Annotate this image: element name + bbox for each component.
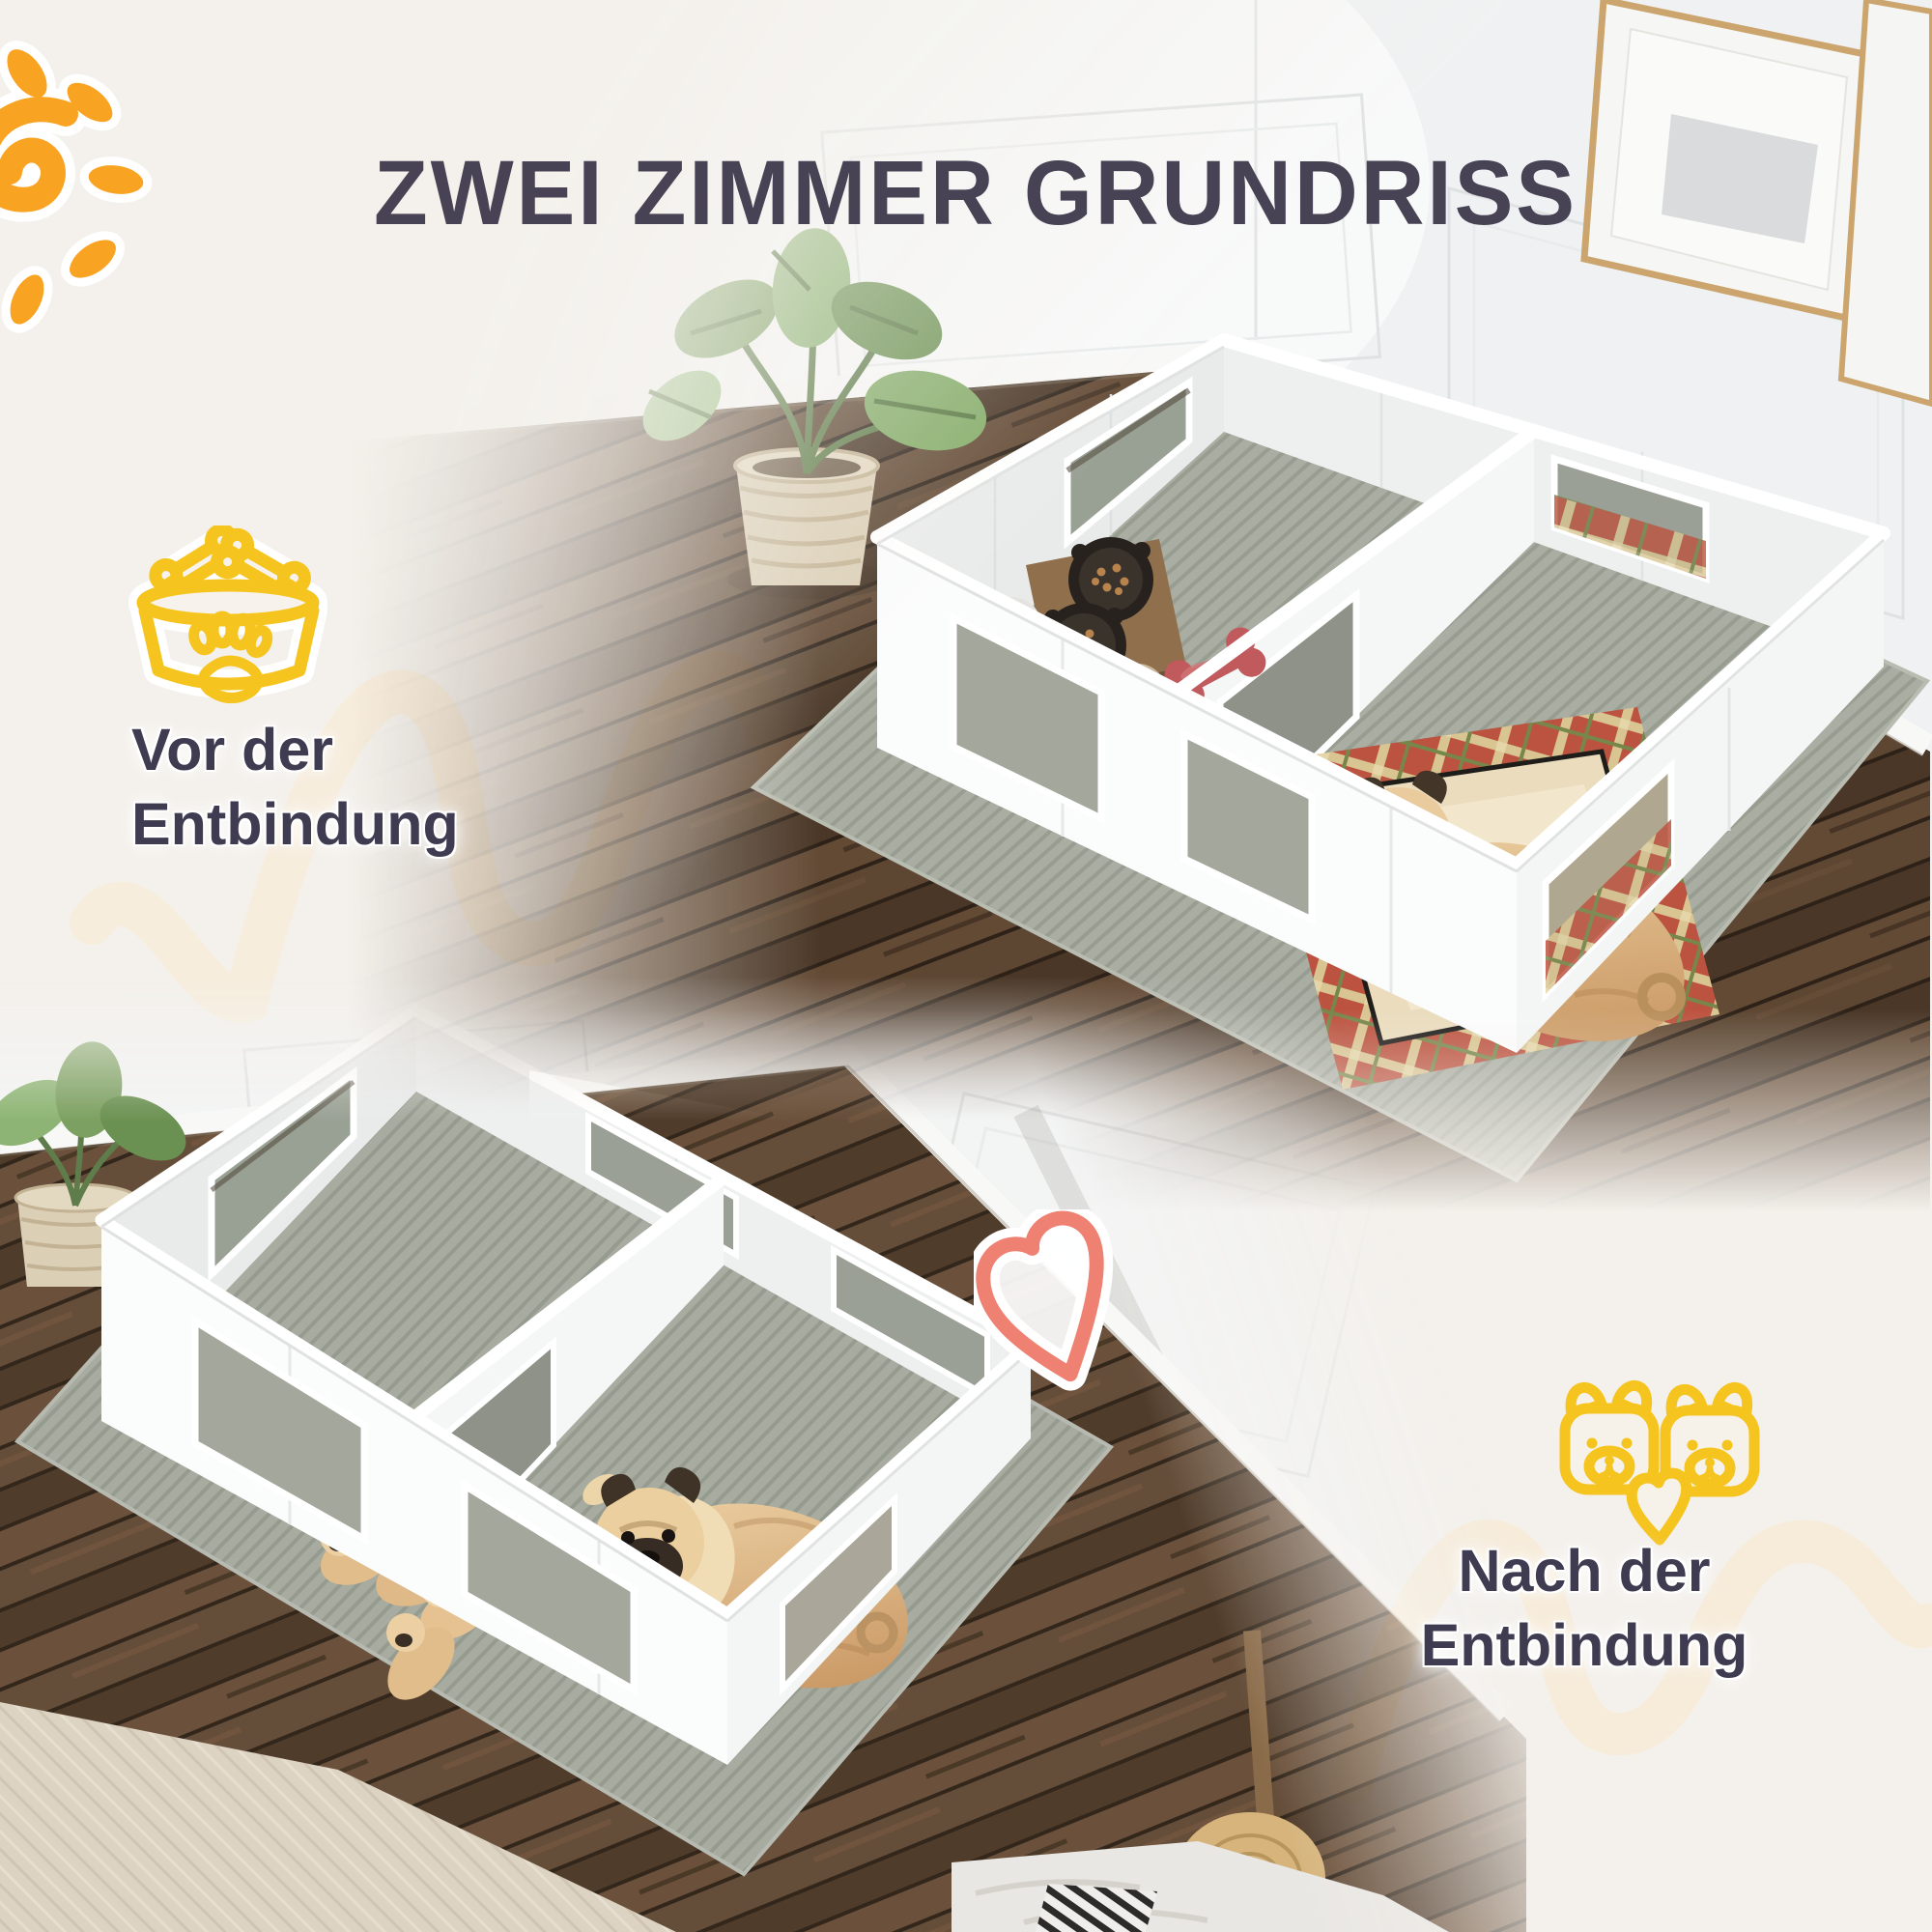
dog-bowl-icon — [114, 526, 341, 724]
dog-heads-heart-icon — [1544, 1376, 1776, 1554]
sun-icon — [0, 17, 164, 336]
marketing-image: Vor der Entbindung — [0, 0, 1932, 1932]
page-title: ZWEI ZIMMER GRUNDRISS — [374, 141, 1577, 246]
heart-between-dogs — [1632, 1473, 1687, 1540]
caption-before-line1: Vor der — [131, 713, 459, 787]
caption-before-line2: Entbindung — [131, 787, 459, 862]
photo-after-delivery — [0, 976, 1526, 1932]
caption-after-line2: Entbindung — [1333, 1608, 1835, 1683]
caption-after-line1: Nach der — [1333, 1534, 1835, 1608]
striped-pillow — [1036, 1884, 1157, 1932]
caption-before-delivery: Vor der Entbindung — [131, 713, 459, 862]
caption-after-delivery: Nach der Entbindung — [1333, 1534, 1835, 1683]
heart-doodle-icon — [974, 1209, 1138, 1403]
